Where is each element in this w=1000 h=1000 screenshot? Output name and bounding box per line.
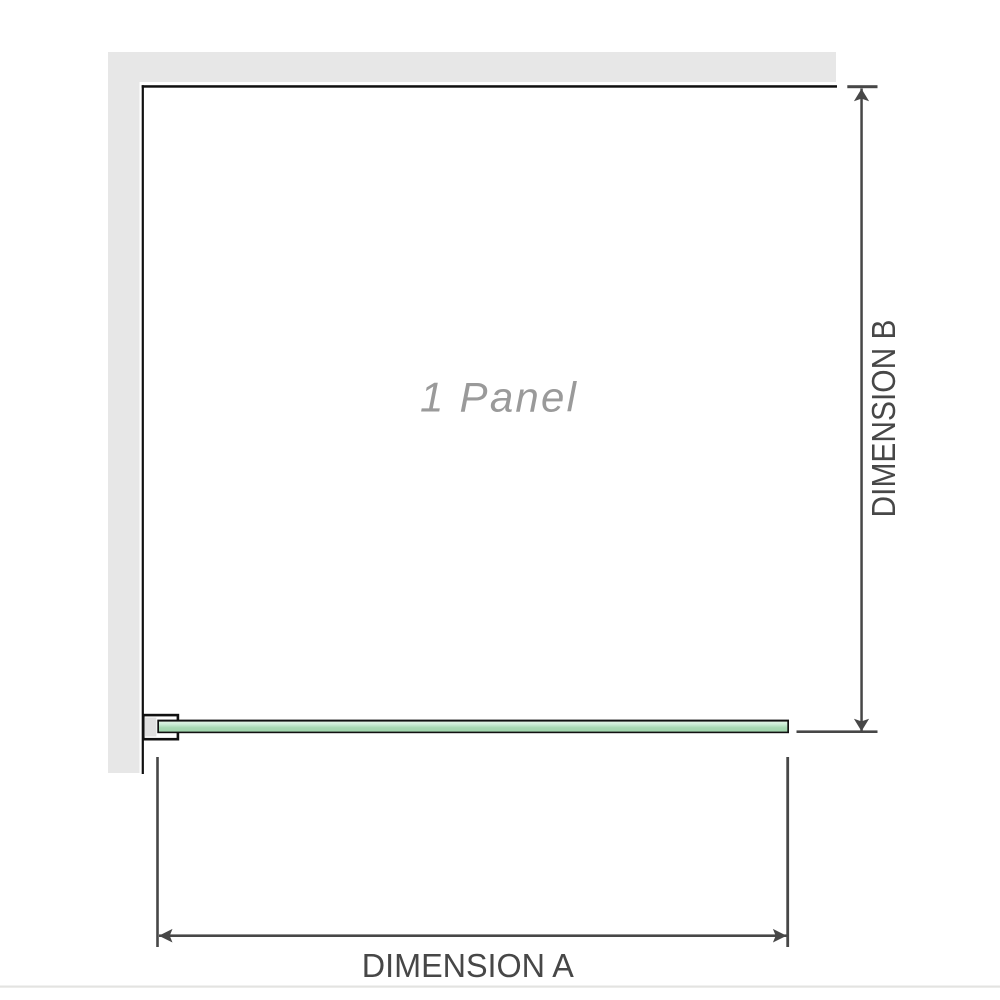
svg-text:DIMENSION A: DIMENSION A: [362, 947, 574, 984]
svg-text:DIMENSION B: DIMENSION B: [865, 320, 902, 518]
